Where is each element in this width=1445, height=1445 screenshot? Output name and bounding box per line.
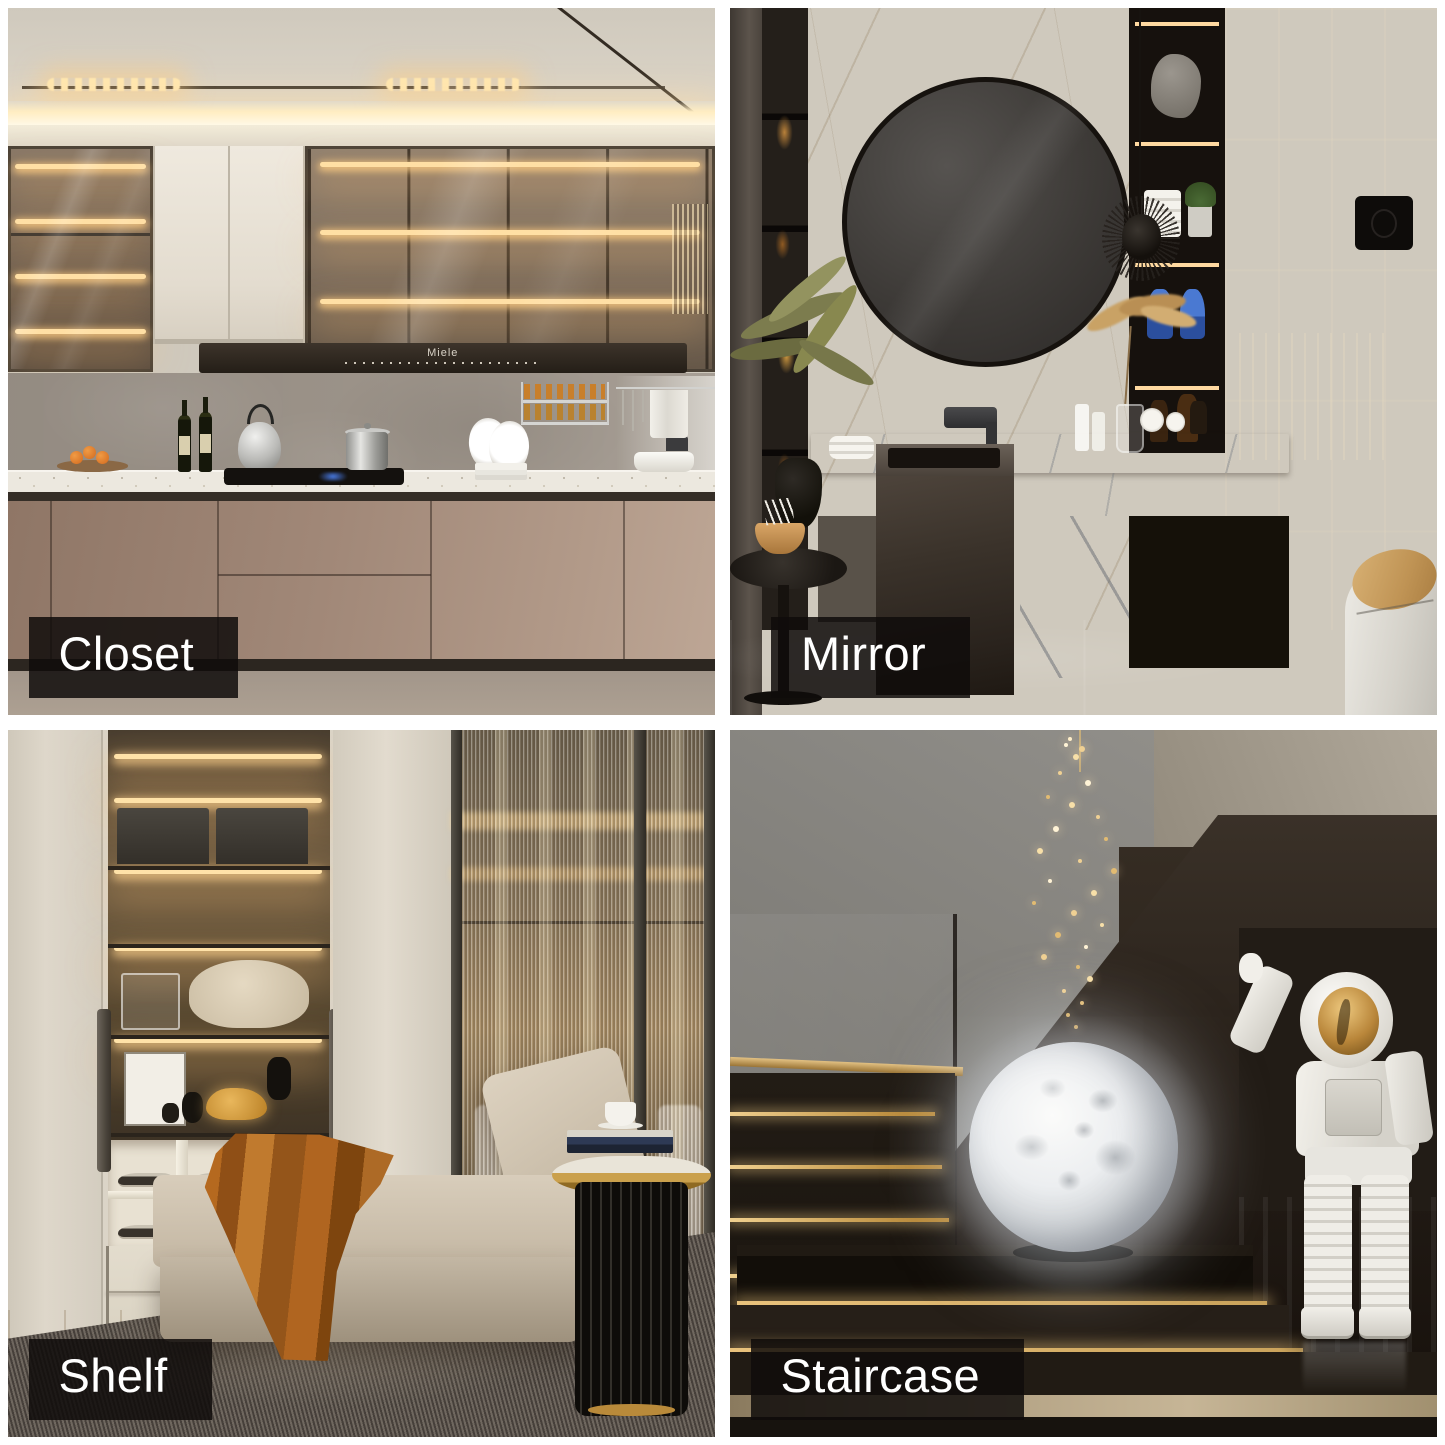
astronaut-leg [1304,1175,1352,1316]
cooking-pot [346,432,388,470]
wine-bottle-neck [182,400,186,416]
cove-light [8,101,715,125]
blue-flame [312,472,354,481]
utensil-rail [616,387,715,389]
orange-fruit [70,451,83,464]
led-strip [114,798,322,803]
coffee-cup [605,1102,636,1126]
kettle [238,422,280,471]
astronaut-boot [1359,1307,1411,1340]
hanging-utensil [622,390,624,425]
pendant-lamp [1122,214,1162,259]
rolled-towels [829,436,874,459]
small-vase [162,1103,179,1123]
counter-edge [8,492,715,501]
tile-caption-label: Staircase [781,1349,981,1402]
led-strip [114,754,322,759]
photo-closet: Miele [8,8,715,715]
sparkle-chandelier [1068,737,1072,741]
orange-fruit [96,451,109,464]
storage-box [216,808,308,865]
pot-lid-knob [364,423,370,429]
glass-reflection [308,149,712,369]
succulent-plant [1185,182,1216,207]
cabinet-seam [430,501,432,659]
spice-rack [521,380,609,424]
step-led-strip [730,1112,935,1116]
soap-bottle [1092,412,1105,450]
astronaut-leg [1361,1175,1409,1316]
counter-cavity [1129,516,1288,668]
range-hood: Miele [199,343,687,373]
bowl-stack [634,452,693,472]
wine-label [179,436,190,454]
rack-frame [607,382,609,424]
shelf-board [108,944,330,948]
astronaut-hand [1239,953,1263,983]
diffuser-sticks [764,497,795,525]
kitchen-wall [8,125,715,148]
wine-bottle-neck [203,397,207,413]
wardrobe-door-left [8,730,103,1352]
tile-caption-label: Mirror [801,627,926,680]
glass-cabinet-right [305,146,715,372]
glass-vase [1116,404,1144,453]
hood-brand-label: Miele [427,347,458,359]
spice-jars [524,404,605,420]
cabinet-seam [623,501,625,659]
tile-caption: Mirror [771,617,970,698]
photo-shelf: Shelf [8,730,715,1437]
table-clock [267,1057,291,1101]
spice-jars [524,384,605,399]
astronaut-chest-pack [1325,1079,1382,1136]
mirror-reflection [842,77,1129,367]
plate-stack [475,463,527,470]
moon-craters [969,1042,1178,1251]
storage-box [117,808,209,865]
hand-towel [650,390,688,438]
plant-pot [1188,203,1212,237]
pendant-cable [1139,8,1141,199]
hanging-utensil [632,390,634,431]
ceiling-spotlights [386,78,520,91]
step-led-strip [730,1165,942,1169]
tile-caption: Closet [29,617,239,698]
table-foot [588,1404,676,1415]
book-stack [567,1130,673,1153]
amber-bottle [1190,401,1207,434]
pillow [189,960,309,1028]
chaise-base [160,1257,581,1342]
hanging-utensil [642,390,644,423]
white-wall-cabinet [153,146,305,344]
step-led-strip [730,1218,949,1222]
rack-shelf [521,422,609,425]
drawer-seam [218,574,432,576]
tile-caption: Staircase [751,1339,1025,1420]
glass-cabinet-left [8,146,153,372]
floor-shadow-band [730,1417,1437,1437]
floor-reflection [1303,1342,1406,1406]
sink-faucet [666,436,689,450]
photo-staircase: Staircase [730,730,1437,1437]
shelf-board [108,866,330,870]
shelf-board [108,1035,330,1039]
collage-grid: Miele [0,0,1445,1445]
chandelier-wire [1079,730,1081,772]
photo-mirror: Mirror [730,8,1437,715]
hood-controls [345,362,540,364]
sink-basin [888,448,1000,468]
gold-figurine [206,1088,267,1121]
tile-caption-label: Shelf [59,1349,168,1402]
rack-frame [521,382,523,424]
tile-caption: Shelf [29,1339,212,1420]
fluted-table-body [575,1182,688,1415]
soap-bottle [1075,404,1089,451]
side-table [730,548,847,589]
wine-label [200,434,211,452]
astronaut-boot [1301,1307,1353,1340]
tile-caption-label: Closet [59,627,195,680]
cabinet-seam [228,146,230,344]
black-vase [182,1092,203,1123]
marble-cabinet-panel [1020,516,1130,679]
ceiling-spotlights [47,78,181,91]
left-stone-wall [730,8,762,715]
rack-shelf [521,400,609,403]
door-handle [97,1009,110,1172]
sculpture [1151,54,1200,118]
fruit-plate [57,460,128,471]
glass-reflection [11,149,150,369]
acrylic-box [121,973,180,1030]
